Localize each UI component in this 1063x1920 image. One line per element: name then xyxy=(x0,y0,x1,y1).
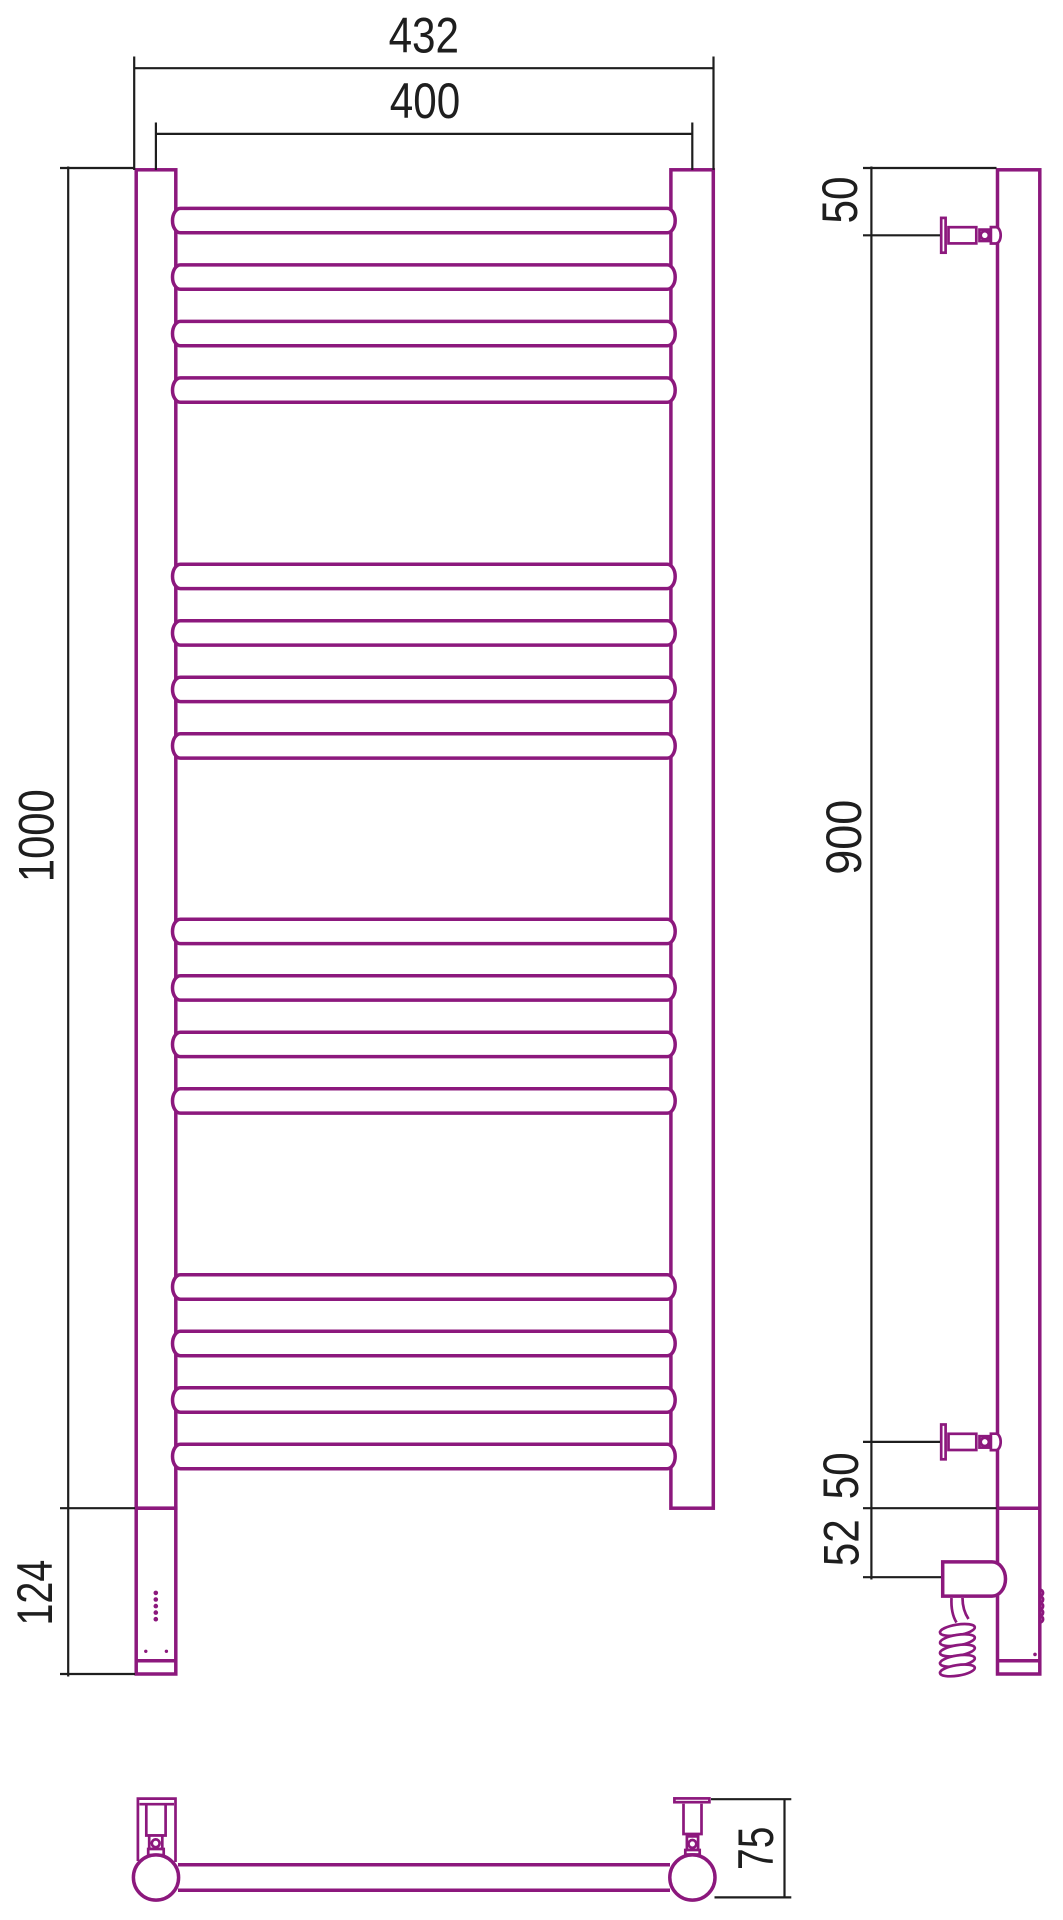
svg-text:50: 50 xyxy=(813,1452,869,1499)
svg-text:432: 432 xyxy=(389,7,459,63)
svg-text:124: 124 xyxy=(7,1560,64,1626)
svg-text:900: 900 xyxy=(817,800,873,875)
svg-text:52: 52 xyxy=(813,1519,869,1566)
svg-text:75: 75 xyxy=(727,1827,784,1870)
svg-text:400: 400 xyxy=(390,73,460,129)
svg-text:1000: 1000 xyxy=(8,789,64,882)
svg-text:50: 50 xyxy=(812,177,868,224)
